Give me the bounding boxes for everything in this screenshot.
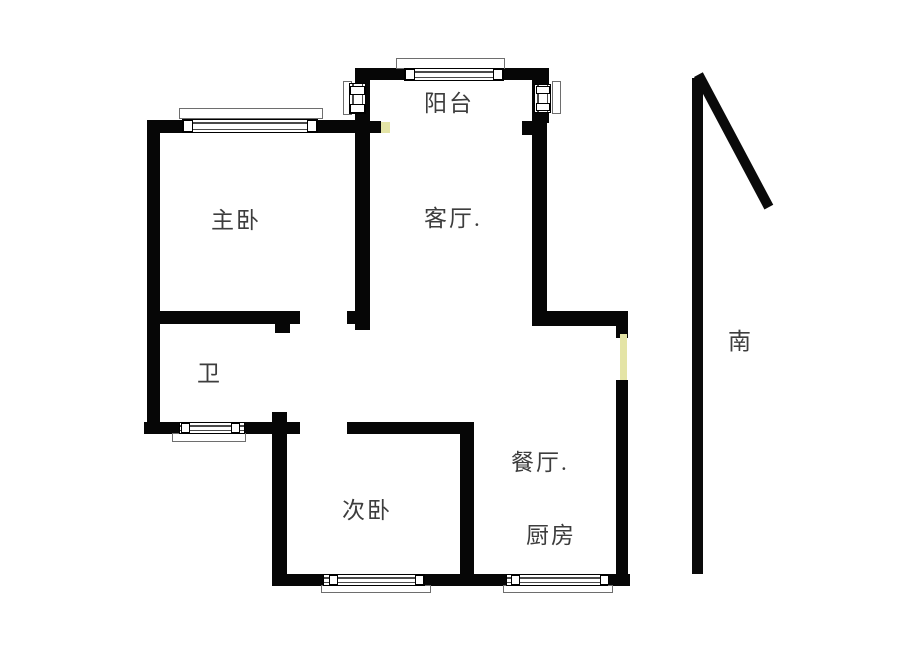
- wall-balcony-jamb-right: [522, 121, 532, 135]
- room-label-bathroom: 卫: [197, 362, 222, 385]
- wall-bathroom-right: [272, 412, 287, 586]
- door-opening-kitchen: [620, 334, 627, 380]
- wall-right-lower: [616, 380, 628, 586]
- wall-balcony-jamb-left: [370, 121, 381, 133]
- compass-vertical-line: [692, 78, 703, 574]
- room-label-kitchen: 厨房: [526, 524, 576, 547]
- room-label-balcony: 阳台: [424, 92, 474, 115]
- room-label-master-bedroom: 主卧: [211, 209, 261, 232]
- wall-bedroom2-kitchen-divider: [460, 422, 474, 586]
- wall-living-right: [532, 120, 547, 313]
- room-label-dining-room: 餐厅.: [511, 451, 569, 474]
- wall-dining-jog: [532, 311, 628, 326]
- compass-arrow-diagonal: [694, 72, 773, 209]
- wall-living-left: [355, 120, 370, 330]
- room-label-living-room: 客厅.: [424, 207, 482, 230]
- wall-bedroom2-top: [347, 422, 473, 434]
- door-opening-balcony: [381, 122, 390, 133]
- wall-master-bottom: [147, 311, 300, 324]
- wall-bathroom-stub: [275, 324, 290, 333]
- room-label-second-bedroom: 次卧: [342, 499, 392, 522]
- wall-left-outer: [147, 120, 160, 434]
- wall-master-door-jamb: [347, 311, 370, 324]
- compass-south-label: 南: [728, 330, 753, 353]
- floor-plan: 南 阳台 主卧 客厅. 卫 次卧 餐厅. 厨房: [0, 0, 900, 647]
